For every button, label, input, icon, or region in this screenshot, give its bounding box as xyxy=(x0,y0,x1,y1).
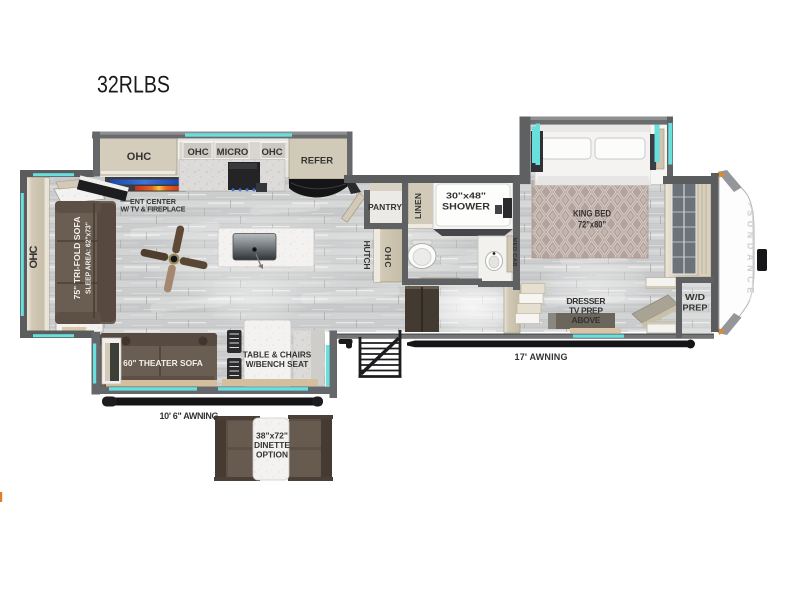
svg-text:PREP: PREP xyxy=(683,303,708,313)
svg-text:TABLE & CHAIRS: TABLE & CHAIRS xyxy=(243,351,312,360)
svg-text:HUTCH: HUTCH xyxy=(362,241,372,270)
svg-text:32RLBS: 32RLBS xyxy=(97,72,170,99)
svg-text:MICRO: MICRO xyxy=(217,147,249,158)
svg-text:OHC: OHC xyxy=(383,247,393,268)
svg-text:W/D: W/D xyxy=(685,292,705,302)
svg-text:DRESSER: DRESSER xyxy=(567,296,606,306)
svg-text:38"x72": 38"x72" xyxy=(256,432,288,441)
svg-text:SUNDANCE: SUNDANCE xyxy=(746,210,756,298)
svg-text:ABOVE: ABOVE xyxy=(572,315,601,325)
svg-text:OPTION: OPTION xyxy=(256,451,288,460)
svg-text:W/BENCH SEAT: W/BENCH SEAT xyxy=(246,360,309,369)
svg-text:MED CAB: MED CAB xyxy=(511,238,517,267)
svg-text:30"x48": 30"x48" xyxy=(446,191,486,201)
svg-text:W/ TV & FIREPLACE: W/ TV & FIREPLACE xyxy=(121,205,186,214)
svg-text:10' 6" AWNING: 10' 6" AWNING xyxy=(160,411,219,421)
svg-text:SHOWER: SHOWER xyxy=(442,202,491,212)
svg-text:KING BED: KING BED xyxy=(573,209,611,219)
svg-text:OHC: OHC xyxy=(187,147,208,158)
svg-text:75" TRI-FOLD SOFA: 75" TRI-FOLD SOFA xyxy=(72,217,82,300)
svg-text:60" THEATER SOFA: 60" THEATER SOFA xyxy=(123,358,203,368)
svg-text:OHC: OHC xyxy=(127,151,152,163)
svg-text:DINETTE: DINETTE xyxy=(254,441,291,450)
svg-text:17' AWNING: 17' AWNING xyxy=(515,352,568,362)
svg-text:REFER: REFER xyxy=(301,156,333,167)
svg-text:LINEN: LINEN xyxy=(413,193,423,219)
svg-text:72"x80": 72"x80" xyxy=(578,220,606,230)
svg-text:OHC: OHC xyxy=(261,147,282,158)
svg-text:OHC: OHC xyxy=(28,245,40,268)
svg-text:PANTRY: PANTRY xyxy=(368,202,402,212)
svg-text:TV PREP: TV PREP xyxy=(569,306,603,316)
svg-text:SLEEP AREA: 62"x73": SLEEP AREA: 62"x73" xyxy=(84,222,93,294)
